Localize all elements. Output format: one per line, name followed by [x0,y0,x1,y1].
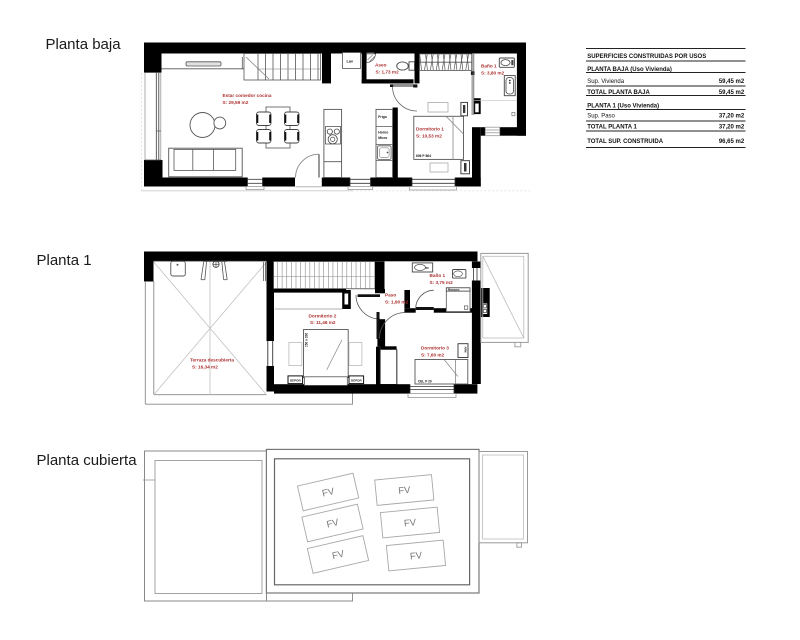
svg-text:TOTAL SUP. CONSTRUIDA: TOTAL SUP. CONSTRUIDA [587,139,664,145]
svg-text:150 x 200: 150 x 200 [305,333,309,347]
svg-text:Horno: Horno [378,130,388,134]
svg-text:ARM: ARM [464,347,468,353]
svg-text:59,45 m2: 59,45 m2 [719,79,745,85]
svg-text:Sup. Paso: Sup. Paso [587,114,615,120]
svg-text:Planta 1: Planta 1 [37,252,92,269]
svg-text:606 P 864: 606 P 864 [416,154,431,158]
svg-text:Dormitorio 1: Dormitorio 1 [416,127,444,132]
svg-text:60: 60 [426,266,430,270]
svg-text:FV: FV [398,485,412,497]
svg-text:S: 11,46 m2: S: 11,46 m2 [310,320,336,325]
svg-text:S: 1,90 m2: S: 1,90 m2 [385,300,409,305]
svg-text:DEPOR: DEPOR [351,379,363,383]
svg-text:SUPERFICIES CONSTRUIDAS POR US: SUPERFICIES CONSTRUIDAS POR USOS [587,54,706,60]
svg-text:TOTAL PLANTA 1: TOTAL PLANTA 1 [587,125,637,131]
svg-text:37,20 m2: 37,20 m2 [719,125,745,131]
svg-text:Micro: Micro [378,136,387,140]
svg-text:Baño 1: Baño 1 [481,64,497,69]
svg-text:Sup. Vivienda: Sup. Vivienda [587,79,625,85]
svg-text:Terraza descubierta: Terraza descubierta [190,358,234,363]
svg-text:S: 10,53 m2: S: 10,53 m2 [416,134,442,139]
svg-text:Aseo: Aseo [375,63,387,68]
svg-text:Frigo: Frigo [378,115,386,119]
svg-text:DEPOR: DEPOR [290,379,302,383]
svg-text:FV: FV [410,550,424,562]
svg-text:CEL P 20: CEL P 20 [418,379,432,383]
svg-text:Planta cubierta: Planta cubierta [37,452,138,469]
svg-text:Dormitorio 3: Dormitorio 3 [421,346,449,351]
svg-text:96,65 m2: 96,65 m2 [719,139,745,145]
svg-text:S: 3,75 m2: S: 3,75 m2 [430,280,454,285]
svg-text:PLANTA 1 (Uso Vivienda): PLANTA 1 (Uso Vivienda) [587,103,659,109]
svg-text:Estar comedor cocina: Estar comedor cocina [223,93,272,98]
svg-text:Planta baja: Planta baja [46,36,122,53]
svg-text:S: 1,73 m2: S: 1,73 m2 [376,70,400,75]
svg-text:S: 3,80 m2: S: 3,80 m2 [481,71,505,76]
svg-text:S: 16,34 m2: S: 16,34 m2 [192,365,218,370]
svg-text:FV: FV [404,517,418,529]
svg-text:S: 29,59 m2: S: 29,59 m2 [223,100,249,105]
svg-text:Dormitorio 2: Dormitorio 2 [309,314,337,319]
svg-text:Paso: Paso [385,293,396,298]
svg-text:Lav: Lav [347,60,354,64]
svg-text:Baño 1: Baño 1 [430,273,446,278]
svg-text:S: 7,60 m2: S: 7,60 m2 [421,353,445,358]
svg-text:37,20 m2: 37,20 m2 [719,114,745,120]
